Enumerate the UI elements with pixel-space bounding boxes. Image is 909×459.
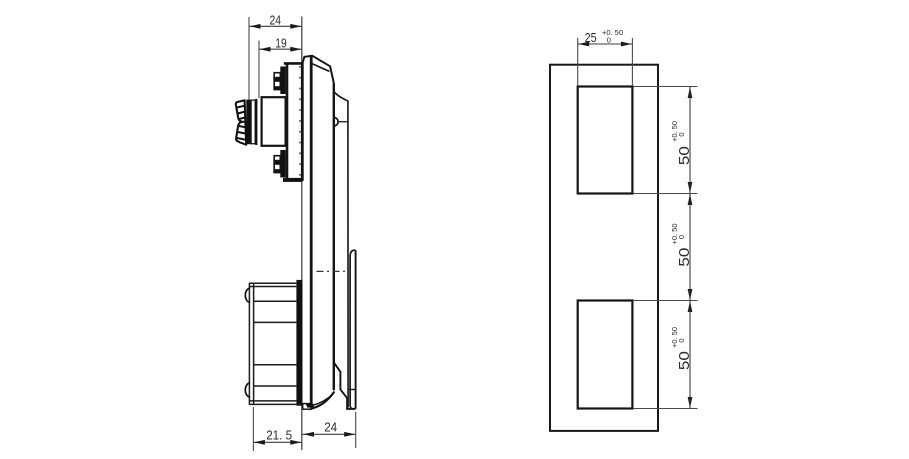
svg-text:24: 24	[324, 420, 337, 434]
svg-text:50: 50	[676, 351, 693, 370]
svg-text:0: 0	[677, 338, 686, 342]
svg-text:21. 5: 21. 5	[266, 428, 292, 442]
svg-text:24: 24	[270, 14, 282, 28]
svg-text:+0. 50: +0. 50	[670, 121, 679, 142]
svg-text:25: 25	[585, 30, 597, 45]
svg-text:+0. 50: +0. 50	[670, 327, 679, 348]
svg-text:0: 0	[607, 36, 611, 45]
svg-text:19: 19	[275, 37, 287, 51]
svg-text:+0. 50: +0. 50	[670, 223, 679, 244]
svg-text:50: 50	[676, 146, 693, 165]
svg-text:0: 0	[677, 132, 686, 136]
svg-text:0: 0	[677, 235, 686, 239]
svg-text:50: 50	[676, 248, 693, 267]
svg-text:+0. 50: +0. 50	[602, 28, 623, 37]
